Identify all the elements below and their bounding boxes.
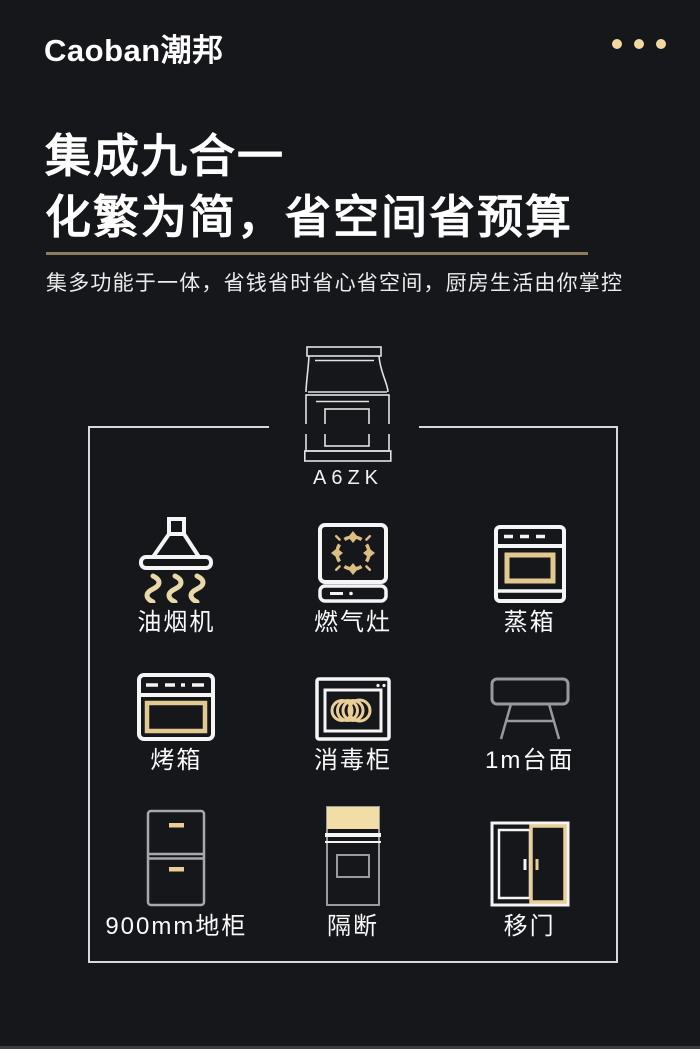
title-line-1: 集成九合一: [45, 126, 573, 187]
feature-label: 隔断: [327, 913, 379, 941]
feature-label: 油烟机: [137, 609, 215, 637]
feature-grid: 油烟机 燃气灶 蒸箱: [88, 426, 618, 963]
partition-icon: [324, 805, 382, 907]
feature-steam-oven: 蒸箱: [441, 426, 618, 648]
feature-disinfection-cabinet: 消毒柜: [265, 648, 442, 785]
feature-label: 燃气灶: [314, 609, 392, 637]
feature-label: 蒸箱: [504, 609, 556, 637]
feature-range-hood: 油烟机: [88, 426, 265, 648]
gold-divider: [46, 252, 588, 255]
feature-partition: 隔断: [265, 785, 442, 963]
feature-label: 烤箱: [150, 747, 202, 775]
feature-label: 移门: [504, 913, 556, 941]
feature-oven: 烤箱: [88, 648, 265, 785]
gas-stove-icon: [318, 523, 388, 603]
range-hood-icon: [138, 517, 214, 603]
dot-icon: [634, 39, 644, 49]
sliding-door-icon: [490, 821, 570, 907]
feature-label: 900mm地柜: [105, 913, 247, 941]
feature-label: 1m台面: [485, 747, 574, 775]
base-cabinet-icon: [146, 809, 206, 907]
feature-countertop-1m: 1m台面: [441, 648, 618, 785]
countertop-icon: [490, 677, 570, 741]
feature-base-cabinet-900mm: 900mm地柜: [88, 785, 265, 963]
page-title: 集成九合一 化繁为简，省空间省预算: [45, 126, 573, 248]
disinfection-cabinet-icon: [315, 677, 391, 741]
feature-sliding-door: 移门: [441, 785, 618, 963]
oven-icon: [137, 673, 215, 741]
menu-dots-icon: [612, 39, 666, 49]
steam-oven-icon: [494, 525, 566, 603]
feature-gas-stove: 燃气灶: [265, 426, 442, 648]
dot-icon: [612, 39, 622, 49]
brand-logo: Caoban潮邦: [44, 25, 224, 70]
feature-label: 消毒柜: [314, 747, 392, 775]
dot-icon: [656, 39, 666, 49]
subtitle: 集多功能于一体，省钱省时省心省空间，厨房生活由你掌控: [46, 267, 623, 297]
title-line-2: 化繁为简，省空间省预算: [45, 187, 573, 248]
